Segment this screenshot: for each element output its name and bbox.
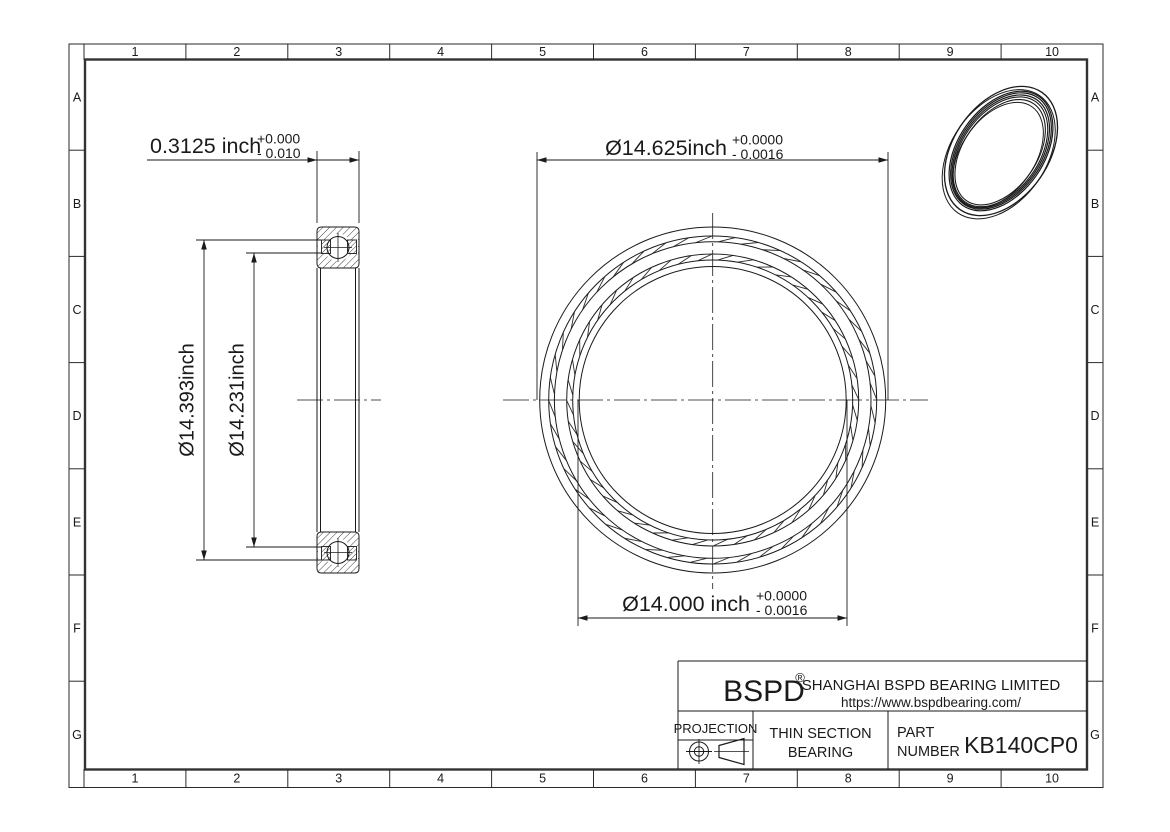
part-number-value: KB140CP0 <box>964 732 1078 758</box>
grid-row-label-left: F <box>73 622 81 636</box>
grid-col-label-bottom: 9 <box>947 772 954 786</box>
ball-separator-tick <box>667 556 685 558</box>
ball-separator-tick <box>833 328 845 338</box>
projection-label: PROJECTION <box>674 721 758 736</box>
ball-separator-tick <box>606 524 623 530</box>
grid-row-label-right: E <box>1091 515 1099 529</box>
ball-separator-tick <box>792 509 801 523</box>
grid-row-label-left: D <box>72 409 81 423</box>
section-block-bottom <box>317 532 359 573</box>
ball-separator-tick <box>632 251 644 264</box>
ball-separator-tick <box>692 540 707 545</box>
grid-col-label-top: 10 <box>1045 45 1059 59</box>
grid-row-label-right: G <box>1090 728 1100 742</box>
grid-col-label-bottom: 8 <box>845 772 852 786</box>
ball-separator-tick <box>820 508 828 524</box>
ball-separator-tick <box>850 425 852 441</box>
drawing-sheet: 1122334455667788991010AABBCCDDEEFFGG <box>0 0 1170 827</box>
ball-separator-tick <box>575 489 590 499</box>
ball-separator-tick <box>718 255 733 260</box>
ball-separator-tick <box>859 339 870 353</box>
title-block: BSPD ® SHANGHAI BSPD BEARING LIMITED htt… <box>674 661 1087 769</box>
ball-separator-tick <box>590 479 604 488</box>
grid-col-label-bottom: 5 <box>539 772 546 786</box>
ball-separator-tick <box>718 238 735 242</box>
ball-separator-tick <box>672 538 688 540</box>
grid-col-label-top: 6 <box>641 45 648 59</box>
ball-separator-tick <box>759 546 773 557</box>
ball-separator-tick <box>774 520 784 532</box>
product-type-line1: THIN SECTION <box>769 726 871 742</box>
ball-separator-tick <box>871 406 875 423</box>
first-angle-projection-icon <box>686 739 749 765</box>
ball-separator-tick <box>580 461 592 471</box>
grid-col-label-top: 1 <box>131 45 138 59</box>
grid-col-label-top: 9 <box>947 45 954 59</box>
ball-separator-tick <box>802 523 812 538</box>
ball-separator-tick <box>625 277 634 291</box>
grid-col-label-top: 4 <box>437 45 444 59</box>
ball-separator-tick <box>836 301 851 311</box>
ball-separator-tick <box>803 270 820 276</box>
ball-separator-tick <box>583 293 589 310</box>
grid-col-label-bottom: 7 <box>743 772 750 786</box>
ball-separator-tick <box>820 284 836 292</box>
grid-col-label-top: 8 <box>845 45 852 59</box>
ball-separator-tick <box>652 243 666 254</box>
grid-row-label-right: C <box>1090 303 1099 317</box>
grid-col-label-bottom: 2 <box>233 772 240 786</box>
grid-col-label-bottom: 6 <box>641 772 648 786</box>
dim-width-tol-minus: - 0.010 <box>257 145 301 161</box>
section-view <box>297 227 381 573</box>
grid-row-label-left: E <box>73 515 81 529</box>
ball-separator-tick <box>555 447 566 461</box>
dim-outer-land-value: Ø14.393inch <box>177 343 199 456</box>
part-number-label-line2: NUMBER <box>897 744 960 760</box>
engineering-drawing: 1122334455667788991010AABBCCDDEEFFGG <box>0 0 1170 827</box>
grid-row-label-left: C <box>72 303 81 317</box>
company-name: SHANGHAI BSPD BEARING LIMITED <box>802 677 1061 694</box>
grid-row-label-right: A <box>1091 91 1100 105</box>
ball-separator-tick <box>555 354 557 372</box>
dim-bore-dia-value: Ø14.000 inch <box>622 592 750 616</box>
ball-separator-tick <box>589 508 605 516</box>
product-type-line2: BEARING <box>788 745 853 761</box>
ball-separator-tick <box>781 536 793 549</box>
grid-col-label-bottom: 10 <box>1045 772 1059 786</box>
grid-col-label-bottom: 1 <box>131 772 138 786</box>
ball-separator-tick <box>568 380 573 395</box>
iso-view <box>919 65 1081 240</box>
ball-separator-tick <box>808 297 823 304</box>
cage-section-left <box>322 240 331 254</box>
grid-col-label-bottom: 4 <box>437 772 444 786</box>
ball-separator-tick <box>737 260 753 262</box>
ball-separator-tick <box>849 319 862 331</box>
company-website: https://www.bspdbearing.com/ <box>841 695 1021 710</box>
ball-separator-tick <box>853 405 858 420</box>
dim-width: 0.3125 inch +0.000 - 0.010 <box>147 131 359 224</box>
grid-col-label-top: 5 <box>539 45 546 59</box>
ball-separator-tick <box>869 428 871 446</box>
dim-width-value: 0.3125 inch <box>150 134 261 158</box>
front-view <box>503 213 928 589</box>
grid-col-label-top: 7 <box>743 45 750 59</box>
dim-bore-dia-tol-minus: - 0.0016 <box>756 602 808 618</box>
section-block-top <box>317 227 359 268</box>
ball-separator-tick <box>690 558 707 562</box>
grid-col-label-bottom: 3 <box>335 772 342 786</box>
part-number-label-line1: PART <box>897 725 934 741</box>
grid-row-label-right: F <box>1091 622 1099 636</box>
grid-row-label-right: B <box>1091 197 1099 211</box>
grid-col-label-top: 3 <box>335 45 342 59</box>
ball-separator-tick <box>837 490 843 507</box>
ball-separator-tick <box>822 312 836 321</box>
ball-separator-tick <box>641 267 651 279</box>
grid-row-label-left: B <box>73 197 81 211</box>
ball-separator-tick <box>809 495 816 510</box>
dim-outer-dia-value: Ø14.625inch <box>605 136 727 160</box>
ball-separator-tick <box>610 290 617 305</box>
ball-separator-tick <box>603 496 618 503</box>
ball-separator-tick <box>741 242 759 244</box>
ball-separator-tick <box>550 377 554 394</box>
grid-col-label-top: 2 <box>233 45 240 59</box>
ball-separator-tick <box>597 276 605 292</box>
cage-section-left <box>322 547 331 561</box>
ball-separator-tick <box>572 359 574 375</box>
grid-row-label-left: A <box>73 91 82 105</box>
dim-inner-land-value: Ø14.231inch <box>227 343 249 456</box>
dim-outer-dia-tol-minus: - 0.0016 <box>732 146 784 162</box>
grid-row-label-left: G <box>72 728 82 742</box>
ball-separator-tick <box>564 469 577 481</box>
grid-row-label-right: D <box>1090 409 1099 423</box>
bspd-logo: BSPD <box>723 675 805 708</box>
ball-separator-tick <box>613 262 623 277</box>
